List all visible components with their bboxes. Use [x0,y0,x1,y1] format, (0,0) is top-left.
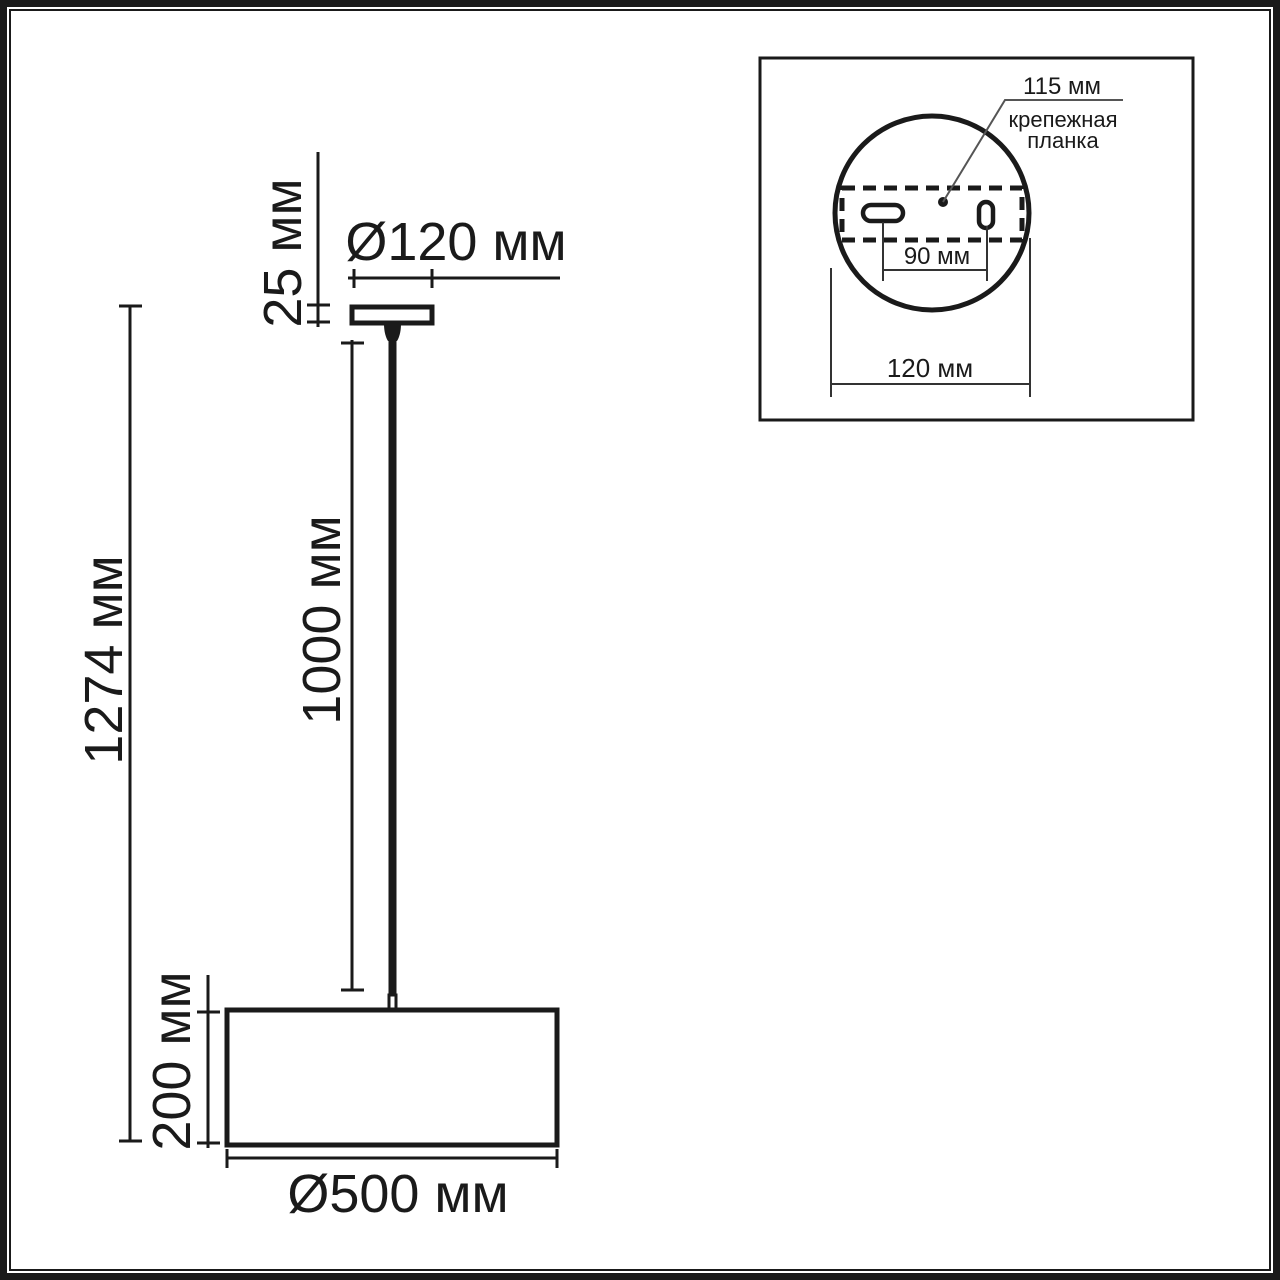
base-diameter-label: 120 мм [887,353,973,383]
dim-canopy-height: 25 мм [253,152,330,328]
pendant-front-view: 1274 мм 25 мм Ø120 мм [74,152,567,1224]
dim-rod-length: 1000 мм [292,340,364,991]
dim-overall-height: 1274 мм [74,306,142,1141]
plate-name-line2: планка [1027,128,1099,153]
dimension-drawing: 1274 мм 25 мм Ø120 мм [0,0,1280,1280]
suspension-cable [389,338,397,997]
drawing-canvas: 1274 мм 25 мм Ø120 мм [0,0,1280,1280]
canopy-diameter-label: Ø120 мм [345,212,566,272]
dim-shade-height: 200 мм [142,971,220,1150]
rod-length-label: 1000 мм [292,515,352,724]
hole-spacing-label: 90 мм [904,243,970,270]
canopy-detail-inset: 115 мм крепежная планка 90 мм 120 мм [760,58,1193,420]
shade-height-label: 200 мм [142,971,202,1150]
plate-length-label: 115 мм [1023,73,1101,100]
canopy-height-label: 25 мм [253,178,313,327]
lampshade [227,1010,557,1145]
mounting-slot-right [979,202,993,228]
mounting-slot-left [863,205,903,221]
dim-canopy-diameter: Ø120 мм [345,212,566,288]
dim-shade-diameter: Ø500 мм [227,1149,557,1224]
canopy-plate [352,307,432,323]
shade-diameter-label: Ø500 мм [287,1164,508,1224]
overall-height-label: 1274 мм [74,555,134,764]
